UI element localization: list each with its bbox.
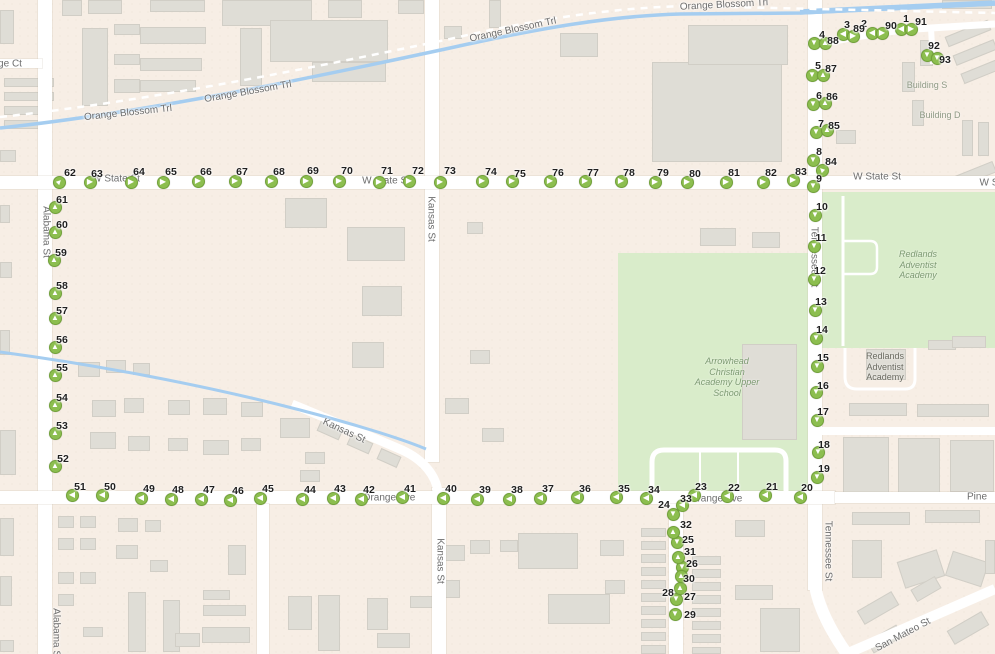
building (836, 130, 856, 144)
route-marker-number-88: 88 (827, 35, 839, 47)
building (482, 428, 504, 442)
route-marker-number-57: 57 (56, 305, 68, 317)
building (88, 0, 122, 14)
building (444, 26, 462, 39)
building (735, 585, 773, 600)
route-marker-number-21: 21 (766, 481, 778, 493)
building (377, 448, 402, 468)
street-label: Alabama St (51, 608, 62, 654)
building (849, 403, 907, 416)
building (203, 440, 229, 455)
building (116, 545, 138, 559)
route-marker-number-16: 16 (817, 380, 829, 392)
route-marker-number-49: 49 (143, 483, 155, 495)
place-label-line: Adventist (899, 260, 937, 271)
building (202, 627, 250, 643)
building (352, 342, 384, 368)
route-marker-number-61: 61 (56, 194, 68, 206)
route-marker-number-41: 41 (404, 483, 416, 495)
route-marker-number-65: 65 (165, 166, 177, 178)
place-label: ArrowheadChristianAcademy UpperSchool (695, 356, 760, 398)
route-marker-number-22: 22 (728, 482, 740, 494)
building (128, 436, 150, 451)
building (947, 611, 990, 645)
route-marker-number-75: 75 (514, 168, 526, 180)
route-marker-number-50: 50 (104, 481, 116, 493)
route-marker-number-12: 12 (814, 265, 826, 277)
building (312, 62, 386, 82)
route-marker-number-84: 84 (825, 156, 837, 168)
building (367, 598, 388, 630)
building (752, 232, 780, 248)
building (641, 632, 666, 641)
route-marker-number-24: 24 (658, 499, 670, 511)
route-marker-number-33: 33 (680, 493, 692, 505)
route-marker-number-68: 68 (273, 166, 285, 178)
building (692, 647, 721, 654)
building (985, 540, 995, 574)
direction-right-arrow-icon: ▶ (406, 176, 412, 186)
building (641, 645, 666, 654)
route-marker-number-30: 30 (683, 573, 695, 585)
building (377, 633, 410, 648)
place-label-line: Building D (919, 110, 960, 121)
route-marker-number-59: 59 (55, 247, 67, 259)
building (692, 595, 721, 604)
direction-right-arrow-icon: ▶ (908, 24, 914, 34)
building (600, 540, 624, 556)
place-label-line: Redlands (866, 351, 904, 362)
street-label: Orange Blossom Trl (469, 15, 558, 44)
place-label-line: Building S (907, 80, 948, 91)
building (140, 58, 202, 71)
building (106, 360, 126, 373)
route-marker-number-32: 32 (680, 519, 692, 531)
route-marker-number-15: 15 (817, 352, 829, 364)
direction-right-arrow-icon: ▶ (336, 176, 342, 186)
route-marker-number-51: 51 (74, 481, 86, 493)
route-marker-number-55: 55 (56, 362, 68, 374)
building (140, 80, 196, 92)
route-marker-number-56: 56 (56, 334, 68, 346)
route-marker-number-28: 28 (662, 587, 674, 599)
route-marker-number-78: 78 (623, 167, 635, 179)
route-marker-number-58: 58 (56, 280, 68, 292)
direction-right-arrow-icon: ▶ (437, 177, 443, 187)
building (150, 560, 168, 572)
building (58, 516, 74, 528)
route-marker-number-90: 90 (885, 20, 897, 32)
route-marker-number-69: 69 (307, 165, 319, 177)
route-marker-number-74: 74 (485, 166, 497, 178)
building (168, 438, 188, 451)
direction-right-arrow-icon: ▶ (128, 177, 134, 187)
building (443, 545, 465, 561)
route-marker-number-77: 77 (587, 167, 599, 179)
route-marker-number-83: 83 (795, 166, 807, 178)
route-marker-number-3: 3 (844, 19, 850, 31)
building (398, 0, 424, 14)
route-marker-32[interactable]: ▲ (667, 526, 680, 539)
building (0, 205, 10, 223)
direction-left-arrow-icon: ◀ (898, 24, 904, 34)
direction-left-arrow-icon: ◀ (869, 28, 875, 38)
place-label: RedlandsAdventistAcademy (899, 249, 937, 281)
street-label: W State St (853, 172, 901, 183)
building (347, 227, 405, 261)
building (241, 438, 261, 451)
street-label: Kansas St (426, 196, 437, 242)
building (92, 400, 116, 417)
route-marker-number-71: 71 (381, 165, 393, 177)
route-marker-number-66: 66 (200, 166, 212, 178)
building (692, 569, 721, 578)
direction-right-arrow-icon: ▶ (479, 176, 485, 186)
direction-right-arrow-icon: ▶ (303, 176, 309, 186)
route-marker-number-17: 17 (817, 406, 829, 418)
street-label: Pine (967, 492, 987, 503)
building (952, 336, 986, 348)
building (240, 28, 262, 86)
building (605, 580, 625, 594)
street-label: Orange Blossom Trl (680, 0, 769, 13)
route-marker-number-4: 4 (819, 29, 825, 41)
building (140, 27, 206, 44)
route-marker-number-91: 91 (915, 16, 927, 28)
route-marker-number-7: 7 (818, 118, 824, 130)
building (518, 533, 578, 569)
route-marker-number-53: 53 (56, 420, 68, 432)
building (124, 398, 144, 413)
route-marker-number-47: 47 (203, 484, 215, 496)
place-label-line: School (695, 388, 760, 399)
building (641, 606, 666, 615)
route-marker-number-67: 67 (236, 166, 248, 178)
building (688, 25, 788, 65)
building (0, 10, 14, 44)
route-marker-number-87: 87 (825, 63, 837, 75)
building (288, 596, 312, 630)
route-marker-number-93: 93 (939, 54, 951, 66)
route-marker-number-43: 43 (334, 483, 346, 495)
route-marker-number-89: 89 (853, 23, 865, 35)
building (0, 518, 14, 556)
building (641, 528, 666, 537)
route-marker-number-64: 64 (133, 166, 145, 178)
building (228, 545, 246, 575)
building (978, 122, 989, 156)
route-marker-number-79: 79 (657, 167, 669, 179)
building (270, 20, 388, 62)
building (470, 540, 490, 554)
building (203, 590, 230, 600)
building (114, 79, 140, 93)
road-alabama-st (38, 0, 52, 654)
building (500, 540, 518, 552)
place-label-line: Academy (899, 270, 937, 281)
route-marker-73[interactable]: ▶ (434, 176, 447, 189)
building (641, 541, 666, 550)
route-marker-number-13: 13 (815, 296, 827, 308)
building (942, 0, 992, 9)
building (467, 222, 483, 234)
route-marker-number-5: 5 (815, 60, 821, 72)
place-label-line: Arrowhead (695, 356, 760, 367)
building (128, 592, 146, 652)
road-w-state-st (0, 176, 995, 189)
building (445, 398, 469, 414)
building (328, 0, 362, 18)
route-marker-number-25: 25 (682, 534, 694, 546)
building (285, 198, 327, 228)
building (114, 24, 140, 35)
map-viewport[interactable]: ge CtOrange Blossom TrlOrange Blossom Tr… (0, 0, 995, 654)
route-marker-number-92: 92 (928, 40, 940, 52)
direction-right-arrow-icon: ▶ (376, 177, 382, 187)
building (305, 452, 325, 464)
place-label: Building S (907, 80, 948, 91)
route-marker-number-18: 18 (818, 439, 830, 451)
building (150, 0, 205, 12)
building (692, 634, 721, 643)
building (133, 363, 150, 375)
route-marker-number-72: 72 (412, 165, 424, 177)
route-marker-number-38: 38 (511, 484, 523, 496)
street-label: Tennessee St (823, 521, 834, 582)
building (83, 627, 103, 637)
place-label-line: Adventist (866, 362, 904, 373)
building (62, 0, 82, 16)
street-label: Kansas St (435, 538, 446, 584)
building (641, 554, 666, 563)
route-marker-number-86: 86 (826, 91, 838, 103)
route-marker-number-81: 81 (728, 167, 740, 179)
place-label-line: Academy (866, 372, 904, 383)
building (362, 286, 402, 316)
building (118, 518, 138, 532)
building (0, 330, 10, 355)
route-marker-number-11: 11 (815, 232, 826, 244)
building (175, 633, 200, 647)
building (489, 0, 501, 28)
building (470, 350, 490, 364)
road-bottom-minor-vertical (257, 504, 269, 654)
place-label-line: Christian (695, 367, 760, 378)
place-label-line: Academy Upper (695, 377, 760, 388)
building (203, 398, 227, 415)
route-marker-number-1: 1 (903, 13, 909, 25)
route-marker-number-29: 29 (684, 609, 696, 621)
direction-right-arrow-icon: ▶ (160, 177, 166, 187)
building (917, 404, 989, 417)
route-marker-number-62: 62 (64, 167, 76, 179)
building (960, 59, 995, 84)
building (145, 520, 161, 532)
route-marker-number-10: 10 (816, 201, 828, 213)
route-marker-number-37: 37 (542, 483, 554, 495)
route-marker-number-39: 39 (479, 484, 491, 496)
building (300, 470, 320, 482)
route-marker-number-76: 76 (552, 167, 564, 179)
building (560, 33, 598, 57)
street-label: ge Ct (0, 59, 22, 70)
route-marker-number-45: 45 (262, 483, 274, 495)
route-marker-31[interactable]: ▲ (672, 551, 685, 564)
building (241, 402, 263, 417)
route-marker-number-20: 20 (801, 482, 813, 494)
building (168, 400, 190, 415)
route-marker-number-14: 14 (816, 324, 828, 336)
building (80, 572, 96, 584)
route-marker-number-26: 26 (686, 558, 698, 570)
route-marker-number-8: 8 (816, 146, 822, 158)
route-marker-number-27: 27 (684, 591, 696, 603)
building (652, 62, 782, 162)
building (203, 605, 246, 616)
route-marker-number-48: 48 (172, 484, 184, 496)
route-marker-number-80: 80 (689, 168, 701, 180)
building (0, 640, 14, 652)
route-marker-number-73: 73 (444, 165, 456, 177)
street-label: W S (980, 178, 995, 189)
building (58, 572, 74, 584)
route-marker-number-9: 9 (816, 173, 822, 185)
route-marker-number-63: 63 (91, 168, 103, 180)
direction-down-arrow-icon: ▼ (671, 609, 679, 619)
building (82, 28, 108, 106)
route-marker-number-44: 44 (304, 484, 316, 496)
place-label: Building D (919, 110, 960, 121)
route-marker-number-85: 85 (828, 120, 840, 132)
building (641, 619, 666, 628)
route-marker-number-6: 6 (816, 90, 822, 102)
building (950, 440, 994, 492)
building (760, 608, 800, 652)
building (692, 582, 721, 591)
building (80, 538, 96, 550)
building (857, 591, 900, 625)
route-marker-number-82: 82 (765, 167, 777, 179)
direction-down-arrow-icon: ▼ (669, 509, 677, 519)
route-marker-number-60: 60 (56, 219, 68, 231)
building (0, 430, 16, 475)
route-marker-29[interactable]: ▼ (669, 608, 682, 621)
building (852, 540, 882, 578)
building (78, 362, 100, 377)
building (58, 594, 74, 606)
route-marker-number-23: 23 (695, 481, 707, 493)
building (700, 228, 736, 246)
route-marker-number-19: 19 (818, 463, 830, 475)
building (90, 432, 116, 449)
building (962, 120, 973, 156)
building (641, 567, 666, 576)
route-marker-number-42: 42 (363, 484, 375, 496)
building (843, 437, 889, 493)
building (0, 262, 12, 278)
route-marker-number-70: 70 (341, 165, 353, 177)
building (80, 516, 96, 528)
route-marker-number-35: 35 (618, 483, 630, 495)
route-marker-number-54: 54 (56, 392, 68, 404)
place-label: RedlandsAdventistAcademy (866, 351, 904, 383)
route-marker-number-46: 46 (232, 485, 244, 497)
direction-up-arrow-icon: ▲ (674, 552, 682, 562)
building (0, 150, 16, 162)
building (114, 54, 140, 65)
building (548, 594, 610, 624)
direction-down-arrow-icon: ▼ (810, 38, 818, 48)
road-tennessee-bottom-curve (815, 586, 847, 654)
building (58, 538, 74, 550)
route-marker-71[interactable]: ▶ (373, 176, 386, 189)
building (925, 510, 980, 523)
building (0, 576, 12, 606)
direction-up-arrow-icon: ▲ (669, 527, 677, 537)
building (692, 621, 721, 630)
route-marker-number-34: 34 (648, 484, 660, 496)
building (280, 418, 310, 438)
route-marker-number-36: 36 (579, 483, 591, 495)
building (318, 595, 340, 651)
building (852, 512, 910, 525)
direction-right-arrow-icon: ▶ (879, 28, 885, 38)
route-marker-number-40: 40 (445, 483, 457, 495)
route-marker-number-52: 52 (57, 453, 69, 465)
building (898, 438, 940, 493)
building (735, 520, 765, 537)
building (692, 608, 721, 617)
place-label-line: Redlands (899, 249, 937, 260)
building (945, 551, 989, 587)
route-marker-number-31: 31 (684, 546, 696, 558)
